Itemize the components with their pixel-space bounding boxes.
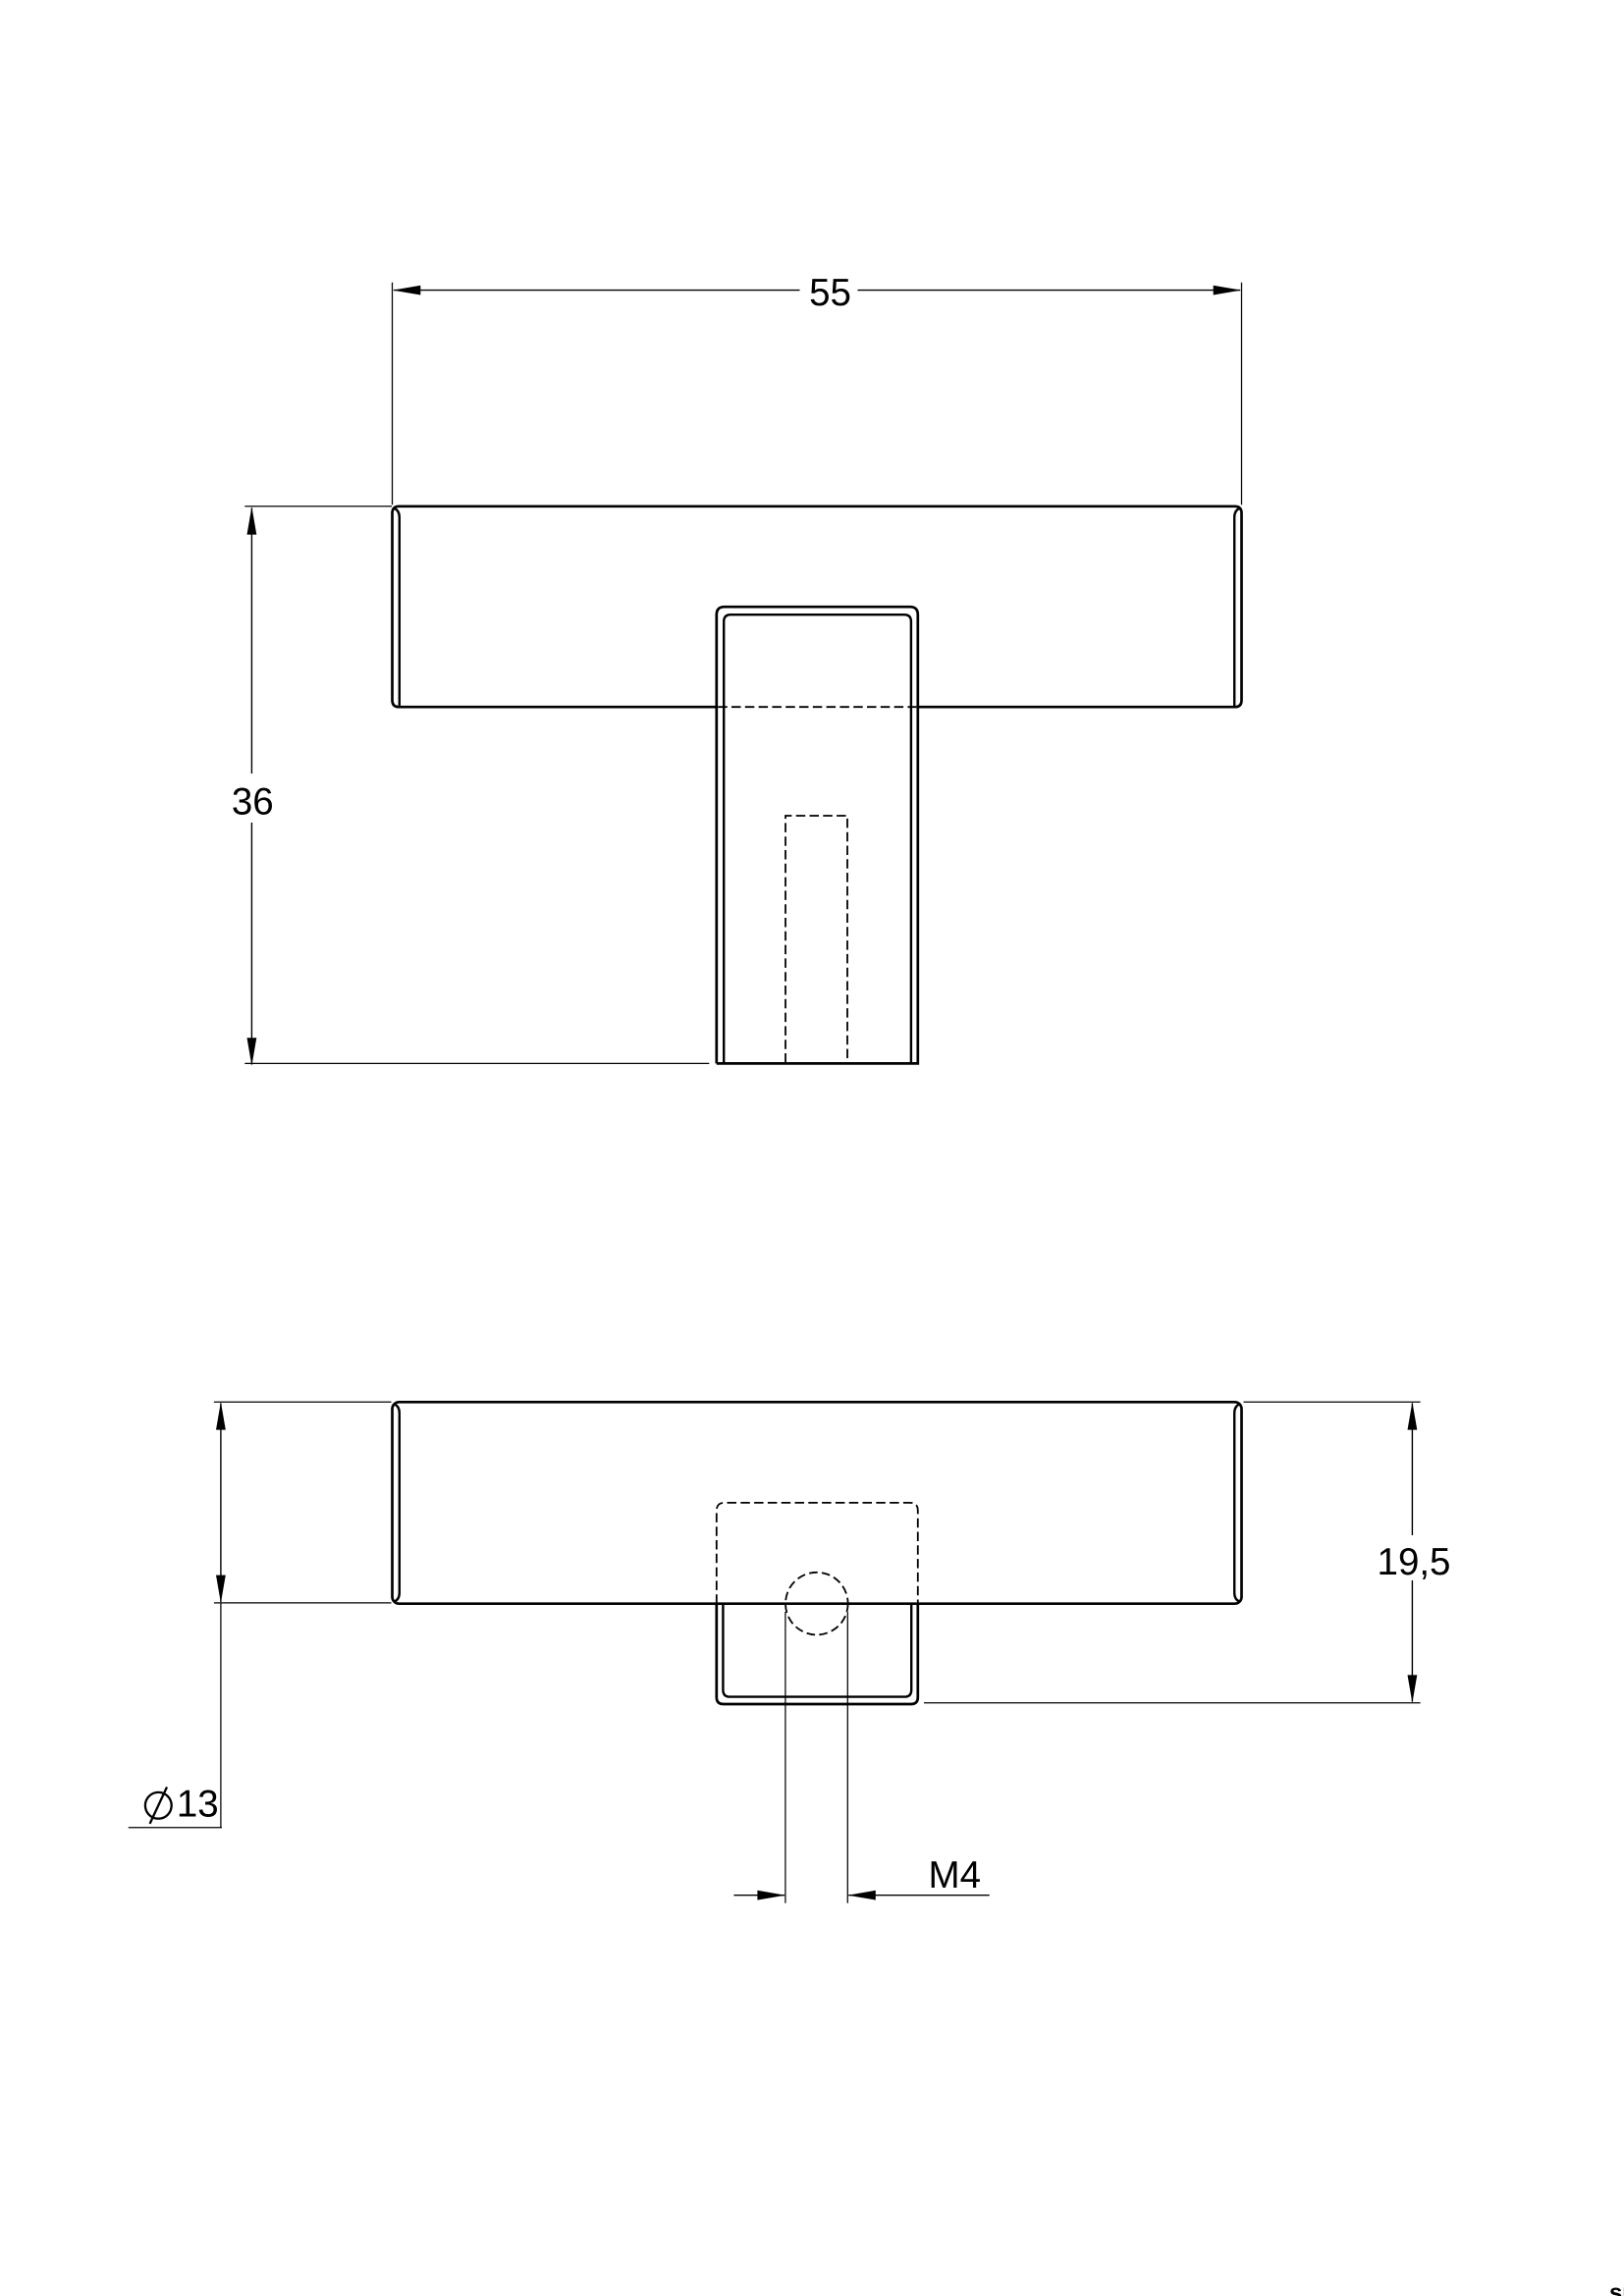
svg-text:M4: M4	[929, 1854, 981, 1896]
svg-text:13: 13	[177, 1784, 219, 1826]
svg-text:su: su	[1609, 2280, 1624, 2296]
svg-text:36: 36	[232, 781, 274, 824]
svg-text:19,5: 19,5	[1378, 1541, 1451, 1583]
svg-text:55: 55	[809, 272, 851, 314]
